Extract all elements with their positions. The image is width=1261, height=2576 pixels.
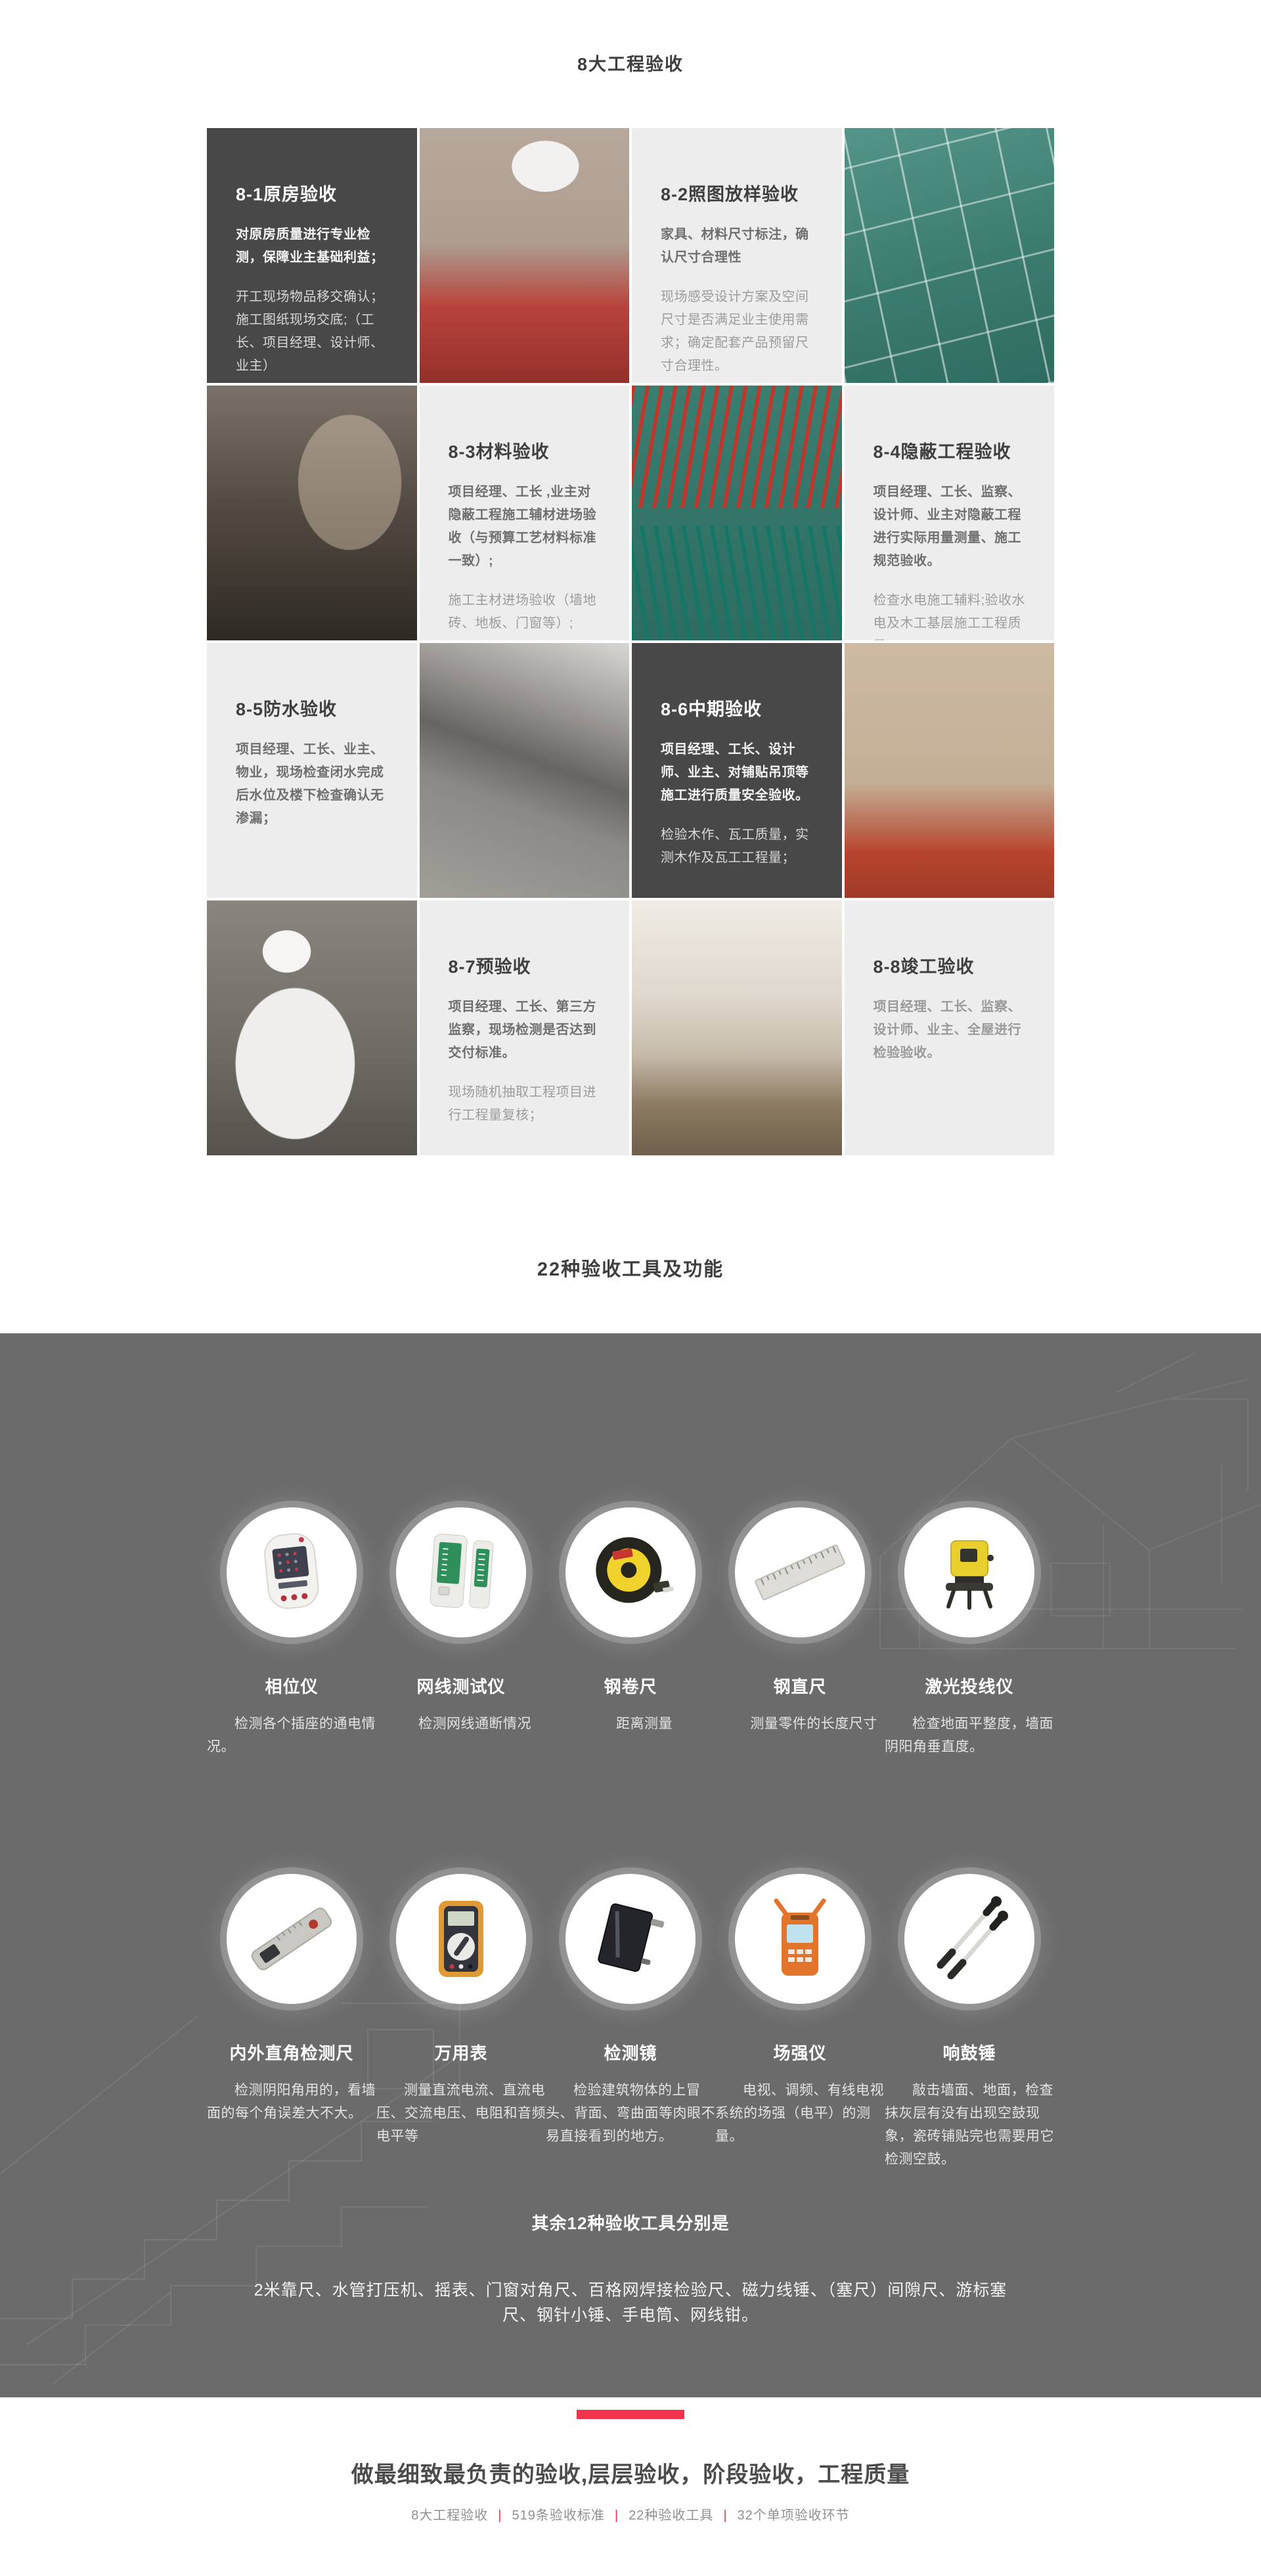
tool-name: 钢直尺	[773, 1676, 826, 1698]
footer-stat-tools: 22种验收工具	[629, 2508, 713, 2523]
footer-separator: |	[723, 2508, 727, 2523]
tool-item-percussion-hammer: 响鼓锤 敲击墙面、地面，检查抹灰层有没有出现空鼓现象，瓷砖铺贴完也需要用它检测空…	[885, 1874, 1054, 2171]
card-8-4: 8-4隐蔽工程验收 项目经理、工长、监察、设计师、业主对隐蔽工程进行实际用量测量…	[845, 386, 1055, 640]
card-title: 8-5防水验收	[236, 700, 392, 720]
card-strong-text: 项目经理、工长、监察、设计师、业主、全屋进行检验验收。	[874, 996, 1030, 1065]
tool-item-phase-tester: 相位仪 检测各个插座的通电情况。	[207, 1507, 376, 1758]
tool-photo-circle	[227, 1874, 357, 2004]
cable-tester-icon	[414, 1525, 508, 1620]
card-normal-text: 检验木作、瓦工质量，实测木作及瓦工工程量；	[661, 824, 817, 870]
card-title: 8-8竣工验收	[874, 957, 1030, 977]
footer-section: 做最细致最负责的验收,层层验收，阶段验收，工程质量 8大工程验收|519条验收标…	[0, 2397, 1261, 2576]
tool-photo-circle	[227, 1507, 357, 1637]
inspection-grid: 8-1原房验收 对原房质量进行专业检测，保障业主基础利益； 开工现场物品移交确认…	[207, 128, 1054, 1155]
inspection-mirror-icon	[583, 1892, 678, 1986]
tool-photo-circle	[396, 1507, 526, 1637]
card-strong-text: 对原房质量进行专业检测，保障业主基础利益；	[236, 223, 392, 269]
section-title-22-tools: 22种验收工具及功能	[0, 1260, 1261, 1281]
field-strength-meter-icon	[753, 1892, 847, 1986]
tool-description: 检测阴阳角用的，看墙面的每个角误差大不大。	[207, 2079, 376, 2125]
percussion-hammer-icon	[922, 1892, 1017, 1986]
card-title: 8-4隐蔽工程验收	[874, 442, 1030, 462]
tool-item-inspection-mirror: 检测镜 检验建筑物体的上冒头、背面、弯曲面等肉眼不易直接看到的地方。	[546, 1874, 715, 2171]
tool-photo-circle	[565, 1507, 696, 1637]
tool-photo-circle	[396, 1874, 526, 2004]
card-8-2: 8-2照图放样验收 家具、材料尺寸标注，确认尺寸合理性 现场感受设计方案及空间尺…	[632, 128, 842, 383]
tool-photo-circle	[735, 1874, 865, 2004]
card-8-8: 8-8竣工验收 项目经理、工长、监察、设计师、业主、全屋进行检验验收。	[845, 900, 1055, 1155]
card-8-3: 8-3材料验收 项目经理、工长 ,业主对隐蔽工程施工辅材进场验收（与预算工艺材料…	[420, 386, 630, 640]
tool-item-field-strength-meter: 场强仪 电视、调频、有线电视系统的场强（电平）的测量。	[715, 1874, 885, 2171]
card-8-7: 8-7预验收 项目经理、工长、第三方监察，现场检测是否达到交付标准。 现场随机抽…	[420, 900, 630, 1155]
card-title: 8-3材料验收	[449, 442, 605, 462]
tool-item-multimeter: 万用表 测量直流电流、直流电压、交流电压、电阻和音频电平等	[376, 1874, 546, 2171]
tools-content: 相位仪 检测各个插座的通电情况。	[207, 1333, 1054, 2328]
card-normal-text: 现场感受设计方案及空间尺寸是否满足业主使用需求；确定配套产品预留尺寸合理性。	[661, 286, 817, 378]
section-title-8-inspections: 8大工程验收	[0, 55, 1261, 75]
tool-description: 测量零件的长度尺寸	[722, 1712, 877, 1735]
tool-photo-circle	[904, 1874, 1034, 2004]
photo-dark-room	[207, 386, 417, 640]
tool-description: 测量直流电流、直流电压、交流电压、电阻和音频电平等	[376, 2079, 546, 2148]
tool-description: 检查地面平整度，墙面阴阳角垂直度。	[885, 1712, 1054, 1758]
footer-separator: |	[615, 2508, 619, 2523]
photo-green-floor-layout	[845, 128, 1055, 383]
tool-photo-circle	[565, 1874, 696, 2004]
card-title: 8-2照图放样验收	[661, 185, 817, 205]
tool-description: 检测各个插座的通电情况。	[207, 1712, 376, 1758]
card-strong-text: 项目经理、工长、设计师、业主、对铺贴吊顶等施工进行质量安全验收。	[661, 738, 817, 807]
card-8-1: 8-1原房验收 对原房质量进行专业检测，保障业主基础利益； 开工现场物品移交确认…	[207, 128, 417, 383]
footer-slogan: 做最细致最负责的验收,层层验收，阶段验收，工程质量	[0, 2464, 1261, 2486]
card-8-6: 8-6中期验收 项目经理、工长、设计师、业主、对铺贴吊顶等施工进行质量安全验收。…	[632, 643, 842, 898]
tool-name: 检测镜	[604, 2042, 657, 2064]
tool-name: 响鼓锤	[942, 2042, 996, 2064]
footer-stats-line: 8大工程验收|519条验收标准|22种验收工具|32个单项验收环节	[0, 2509, 1261, 2522]
card-title: 8-6中期验收	[661, 700, 817, 720]
photo-worker-white-shirt	[207, 900, 417, 1155]
card-strong-text: 项目经理、工长、业主、物业，现场检查闭水完成后水位及楼下检查确认无渗漏；	[236, 738, 392, 830]
card-normal-text: 现场随机抽取工程项目进行工程量复核；	[449, 1081, 605, 1127]
footer-stat-standards: 519条验收标准	[512, 2508, 605, 2523]
angle-ruler-icon	[244, 1892, 339, 1986]
card-strong-text: 项目经理、工长 ,业主对隐蔽工程施工辅材进场验收（与预算工艺材料标准一致）;	[449, 481, 605, 573]
tool-name: 内外直角检测尺	[229, 2042, 353, 2064]
tape-measure-icon	[583, 1525, 678, 1620]
tools-section: 相位仪 检测各个插座的通电情况。	[0, 1333, 1261, 2397]
card-strong-text: 项目经理、工长、监察、设计师、业主对隐蔽工程进行实际用量测量、施工规范验收。	[874, 481, 1030, 573]
card-8-5: 8-5防水验收 项目经理、工长、业主、物业，现场检查闭水完成后水位及楼下检查确认…	[207, 643, 417, 898]
tool-description: 距离测量	[588, 1712, 673, 1735]
tool-description: 电视、调频、有线电视系统的场强（电平）的测量。	[715, 2079, 885, 2148]
card-title: 8-7预验收	[449, 957, 605, 977]
tool-name: 钢卷尺	[604, 1676, 657, 1698]
tool-description: 检验建筑物体的上冒头、背面、弯曲面等肉眼不易直接看到的地方。	[546, 2079, 715, 2148]
tool-item-tape-measure: 钢卷尺 距离测量	[546, 1507, 715, 1758]
photo-worker-red-shirt	[420, 128, 630, 383]
tools-row-2: 内外直角检测尺 检测阴阳角用的，看墙面的每个角误差大不大。	[207, 1758, 1054, 2171]
card-normal-text: 开工现场物品移交确认； 施工图纸现场交底;（工长、项目经理、设计师、业主）	[236, 286, 392, 378]
tool-name: 网线测试仪	[416, 1676, 505, 1698]
laser-level-icon	[922, 1525, 1017, 1620]
other-tools-list: 2米靠尺、水管打压机、摇表、门窗对角尺、百格网焊接检验尺、磁力线锤、（塞尺）间隙…	[253, 2278, 1008, 2328]
tool-name: 激光投线仪	[925, 1676, 1013, 1698]
red-divider	[577, 2410, 684, 2419]
tool-item-steel-ruler: 钢直尺 测量零件的长度尺寸	[715, 1507, 885, 1758]
card-title: 8-1原房验收	[236, 185, 392, 205]
landing-page: 8大工程验收 8-1原房验收 对原房质量进行专业检测，保障业主基础利益； 开工现…	[0, 0, 1261, 2576]
tool-item-laser-level: 激光投线仪 检查地面平整度，墙面阴阳角垂直度。	[885, 1507, 1054, 1758]
card-normal-text: 检查水电施工辅料;验收水电及木工基层施工工程质量； 实测隐蔽工程的工程量，第三方…	[874, 589, 1030, 640]
footer-stat-steps: 32个单项验收环节	[738, 2508, 850, 2523]
photo-bathroom-tiles	[845, 643, 1055, 898]
card-normal-text: 施工主材进场验收（墙地砖、地板、门窗等）;	[449, 589, 605, 635]
footer-separator: |	[498, 2508, 502, 2523]
card-strong-text: 家具、材料尺寸标注，确认尺寸合理性	[661, 223, 817, 269]
steel-ruler-icon	[753, 1525, 847, 1620]
tool-item-cable-tester: 网线测试仪 检测网线通断情况	[376, 1507, 546, 1758]
tool-photo-circle	[904, 1507, 1034, 1637]
photo-red-pipes	[632, 386, 842, 640]
photo-finished-interior	[632, 900, 842, 1155]
tool-name: 场强仪	[773, 2042, 826, 2064]
tool-name: 相位仪	[265, 1676, 318, 1698]
tool-name: 万用表	[434, 2042, 487, 2064]
tool-item-angle-ruler: 内外直角检测尺 检测阴阳角用的，看墙面的每个角误差大不大。	[207, 1874, 376, 2171]
other-tools-title: 其余12种验收工具分别是	[207, 2171, 1054, 2234]
tool-description: 敲击墙面、地面，检查抹灰层有没有出现空鼓现象，瓷砖铺贴完也需要用它检测空鼓。	[885, 2079, 1054, 2171]
photo-waterproof-corner	[420, 643, 630, 898]
footer-stat-inspections: 8大工程验收	[411, 2508, 488, 2523]
tool-description: 检测网线通断情况	[391, 1712, 531, 1735]
tool-photo-circle	[735, 1507, 865, 1637]
tools-row-1: 相位仪 检测各个插座的通电情况。	[207, 1333, 1054, 1758]
multimeter-icon	[414, 1892, 508, 1986]
card-strong-text: 项目经理、工长、第三方监察，现场检测是否达到交付标准。	[449, 996, 605, 1065]
phase-tester-icon	[244, 1525, 339, 1620]
